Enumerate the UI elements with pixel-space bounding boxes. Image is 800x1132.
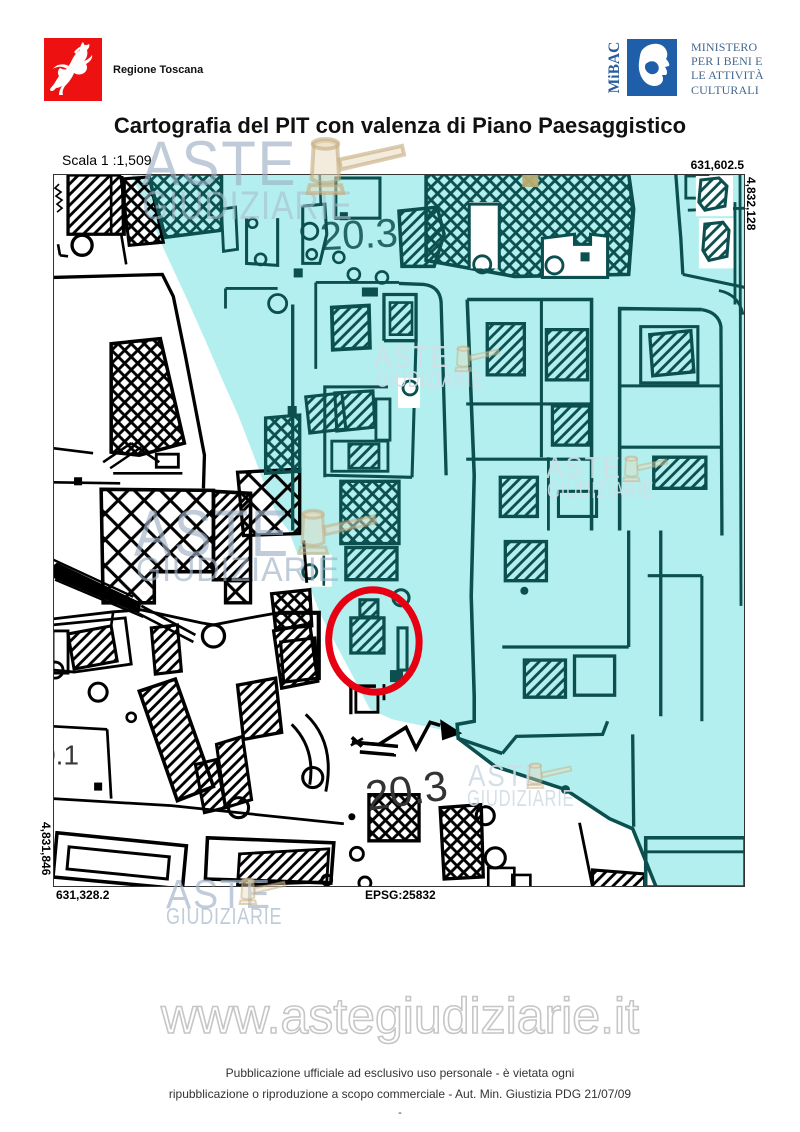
svg-text:0.1: 0.1 — [53, 739, 79, 770]
svg-text:20.3: 20.3 — [363, 762, 451, 820]
